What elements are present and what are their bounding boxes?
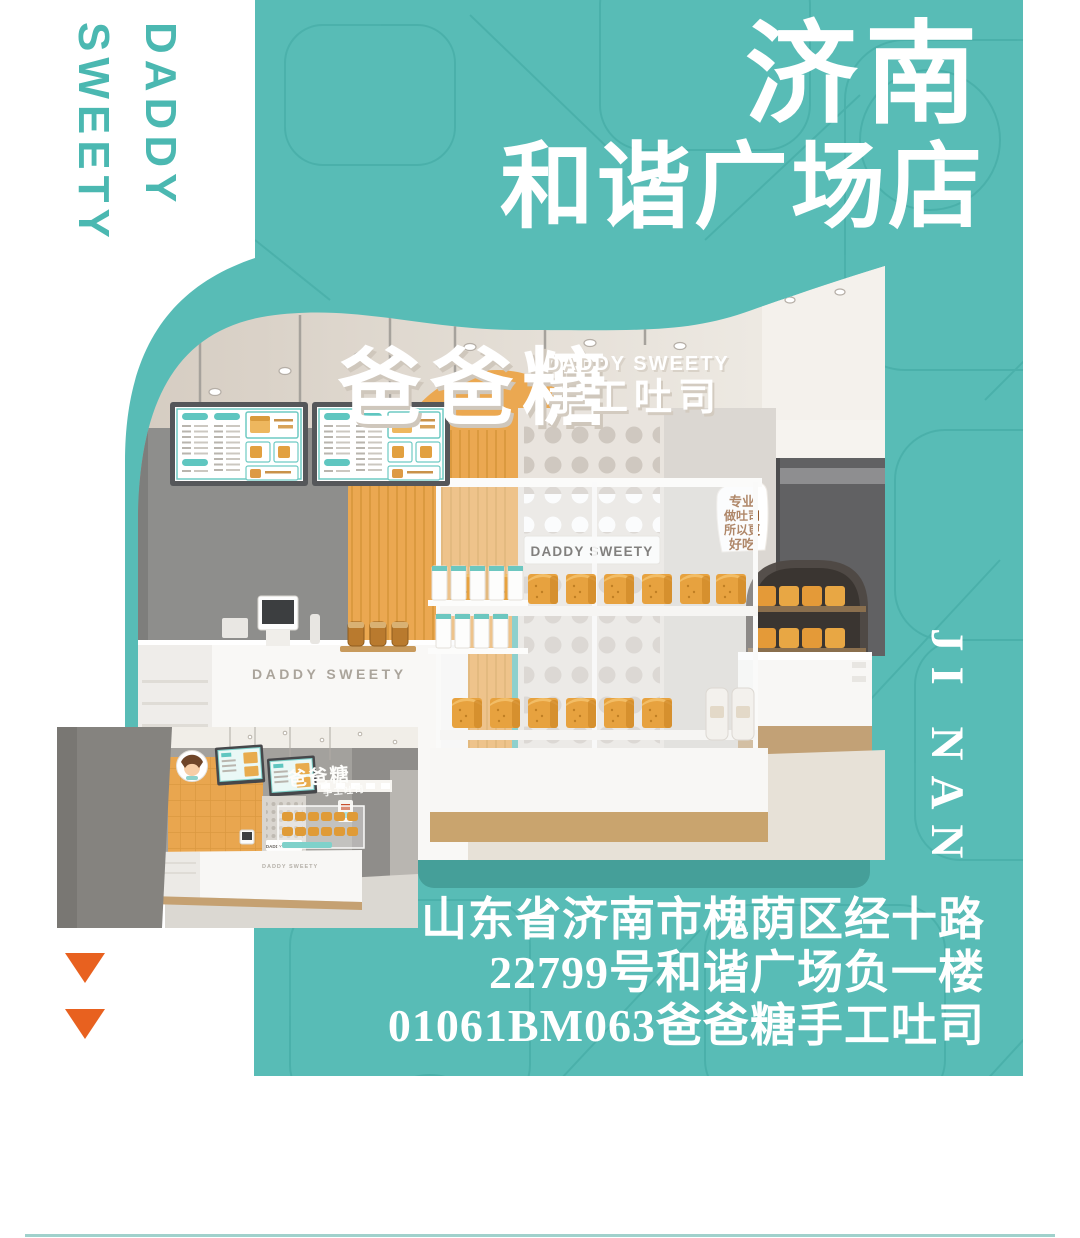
address-line-2: 22799号和谐广场负一楼	[388, 946, 985, 999]
sign-sub: 手工吐司	[546, 377, 722, 419]
store-title-block: 济南 和谐广场店	[500, 14, 985, 238]
honey-jars	[348, 622, 408, 646]
scanner	[310, 614, 320, 644]
inset-display-case	[278, 806, 364, 848]
inset-storefront-photo: 爸爸糖 手工吐司 DADDY SWEETY	[57, 727, 418, 928]
inset-menu-screen	[215, 744, 266, 785]
address-line-3: 01061BM063爸爸糖手工吐司	[388, 999, 985, 1052]
address-block: 山东省济南市槐荫区经十路 22799号和谐广场负一楼 01061BM063爸爸糖…	[388, 893, 985, 1052]
city-vertical-text: JI NAN	[920, 628, 974, 888]
inset-counter-sign: DADDY SWEETY	[262, 864, 318, 870]
address-line-1: 山东省济南市槐荫区经十路	[388, 893, 985, 946]
menu-screen	[170, 402, 308, 486]
counter-sign-text: DADDY SWEETY	[252, 666, 407, 682]
mascot-logo-circle	[177, 751, 208, 782]
glass-display-case	[430, 478, 768, 842]
right-display-base	[738, 652, 872, 754]
title-store: 和谐广场店	[500, 138, 985, 238]
sign-en: DADDY SWEETY	[545, 353, 730, 375]
arched-bread-display	[746, 560, 868, 653]
brand-line-1: DADDY	[127, 22, 194, 322]
poster-page: DADDY SWEETY 专业 做吐司 所以更 好吃	[0, 0, 1080, 1238]
brand-line-2: SWEETY	[60, 22, 127, 322]
down-triangle-icon	[65, 1009, 105, 1039]
down-triangle-icon	[65, 953, 105, 983]
bottom-divider	[25, 1234, 1055, 1237]
brand-vertical-text: DADDY SWEETY	[60, 22, 194, 322]
title-city: 济南	[500, 14, 985, 138]
